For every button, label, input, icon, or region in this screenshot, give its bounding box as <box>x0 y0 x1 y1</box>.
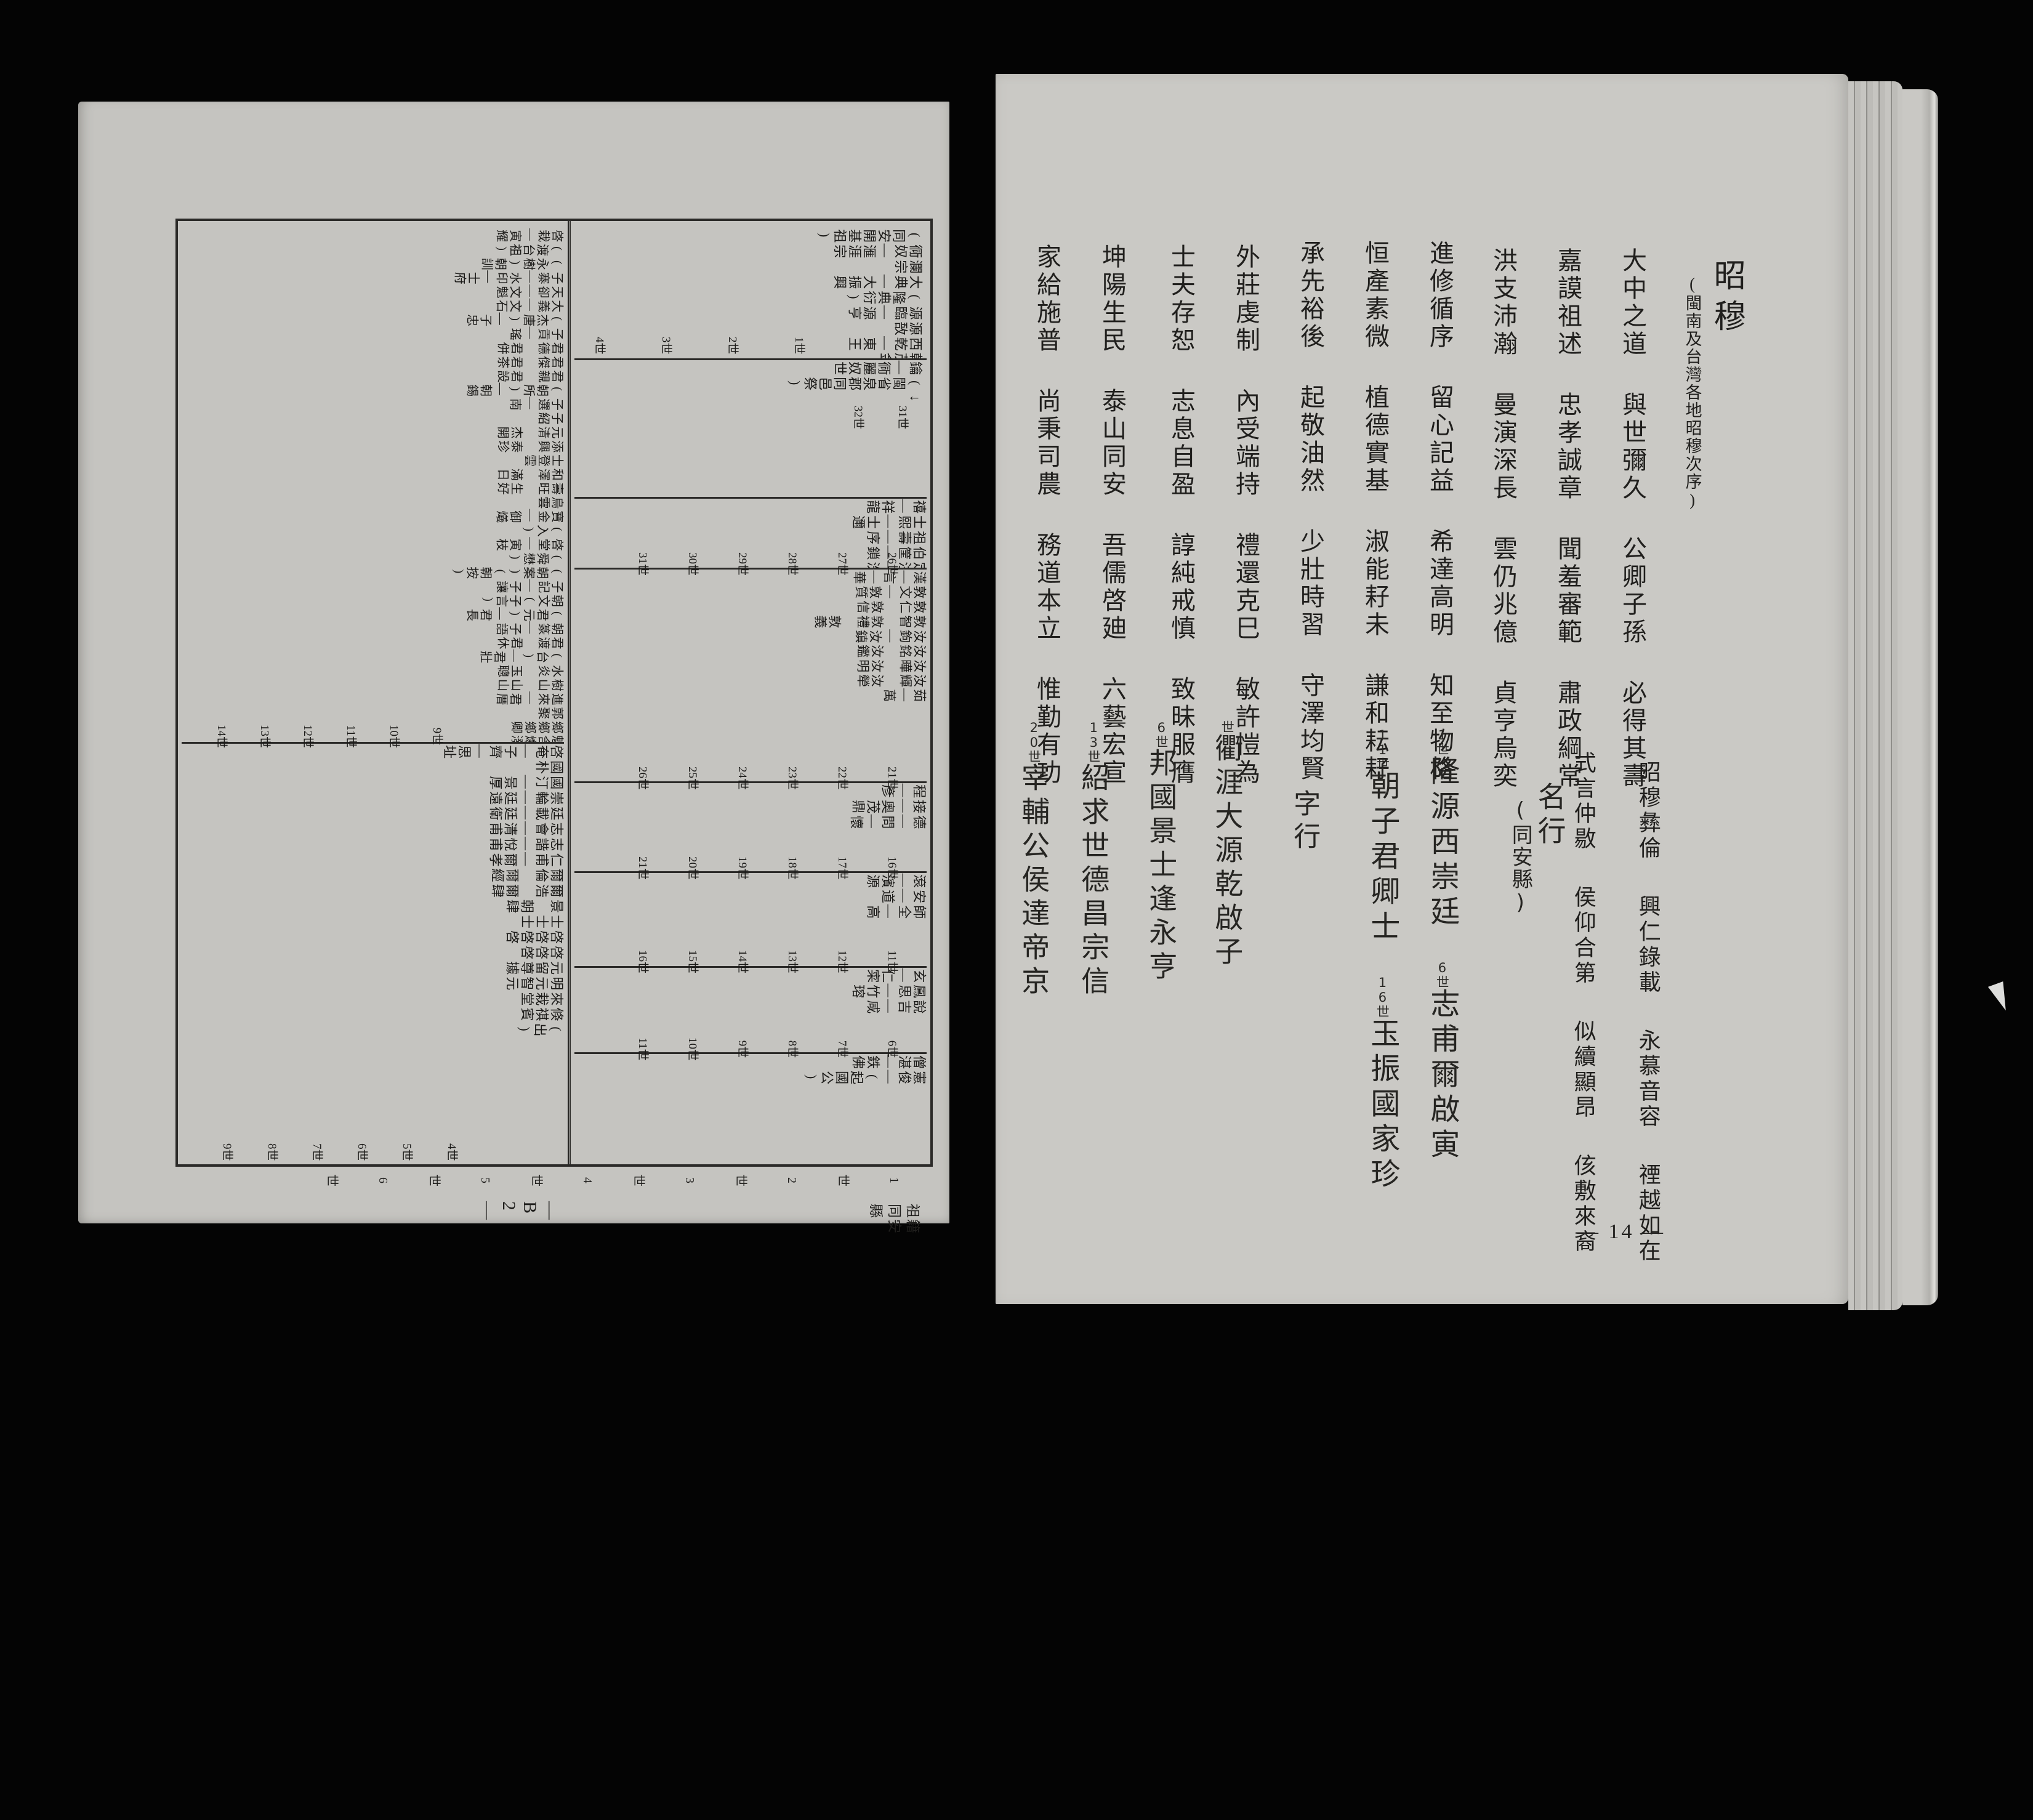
genealogy-chart-frame: (同安開基祖) 衕奴—滙涯宗 瀾宗 大典—大振興 (隆典衍) 源臨—源亨 源敔 … <box>175 219 933 1167</box>
lower-printed-column-1: 昭穆彝倫興仁錄載永慕音容禋越如在 <box>1636 760 1683 1264</box>
origin-caption: 祖籍同安縣 <box>866 1204 922 1248</box>
chart-panel-gen4-9: 啓奄—子齊—思址 國朴 國汀—景厚 崇輪—廷遠 廷載—廷衛 志會—清甫 志諧—悅… <box>182 743 564 1163</box>
title-note: (閩南及台灣各地昭穆次序) <box>1683 275 1702 510</box>
zi-hang-column-1: 世衢涯大源乾啟子 <box>1212 720 1272 970</box>
ming-hang-column-2: 11世朝子君卿士16世玉振國家珍 <box>1367 728 1429 1193</box>
gen-labels-4-9: 4世 5世 6世 7世 8世 9世 <box>203 1143 474 1161</box>
chart-panel-gen9-14: 啓栽—寅耀 (渡台祖) (永樹)朝訓 子寨—水印—士府 天卻—文魁 大義—文石 … <box>182 227 564 744</box>
verse-column-1: 大中之道與世彌久公卿子孫必得其壽 <box>1619 248 1671 791</box>
dust-fleck <box>1988 981 2013 1013</box>
chart-panel-gen1-6: 僧湛—鉄佛 憲俊—(起國公) <box>574 1053 927 1163</box>
zi-hang-column-2: 6世邦國景士逢永亨 <box>1146 720 1206 985</box>
ming-hang-heading: 名行 (同安縣) <box>1505 782 1595 916</box>
verse-column-2: 嘉謨祖述忠孝誠章聞羞審範肅政綱常 <box>1555 248 1606 791</box>
verse-column-8: 士夫存恕志息自盈諄純戒慎致昧服膺 <box>1168 244 1220 787</box>
zi-hang-column-3: 13世紹求世德昌宗信 <box>1079 720 1138 1000</box>
book-scan: (同安開基祖) 衕奴—滙涯宗 瀾宗 大典—大振興 (隆典衍) 源臨—源亨 源敔 … <box>0 0 2033 1820</box>
chart-row-lower: 啓栽—寅耀 (渡台祖) (永樹)朝訓 子寨—水印—士府 天卻—文魁 大義—文石 … <box>178 221 568 1164</box>
right-page: 昭穆 (閩南及台灣各地昭穆次序) 大中之道與世彌久公卿子孫必得其壽 嘉謨祖述忠孝… <box>996 74 1848 1304</box>
zi-hang-heading: 字行 <box>1290 789 1347 855</box>
chart-row-upper: (同安開基祖) 衕奴—滙涯宗 瀾宗 大典—大振興 (隆典衍) 源臨—源亨 源敔 … <box>568 221 930 1164</box>
gen-labels-1-4: 1世 2世 3世 4世 <box>616 337 832 355</box>
verse-column-4: 進修循序留心記益希達高明知至物格 <box>1427 240 1478 783</box>
left-page-number: — B 2 — <box>477 1201 561 1223</box>
verse-column-10: 家給施普尚秉司農務道本立惟勤有功 <box>1034 244 1085 787</box>
chart-panel-gen21-26: 漢—言—華 敦文—敦質 敦仁 敦信 敦智 敦禮 敦義 汝鉤—汝鎮 汝銘 汝鑑 汝… <box>574 569 927 783</box>
verse-column-3: 洪支沛瀚曼演深長雲仍兆億貞亨烏奕 <box>1490 248 1542 791</box>
section-title: 昭穆 (閩南及台灣各地昭穆次序) <box>1675 259 1776 510</box>
gen-labels-outside-1-6: 1世 2世 3世 4世 5世 6世 <box>611 1174 919 1186</box>
page-stack-edges <box>1848 81 1902 1310</box>
title-text: 昭穆 <box>1709 259 1744 340</box>
genealogy-chart: (同安開基祖) 衕奴—滙涯宗 瀾宗 大典—大振興 (隆典衍) 源臨—源亨 源敔 … <box>175 219 933 1167</box>
verse-column-7: 外莊虔制內受端持禮還克巳敏許愷為 <box>1233 244 1284 787</box>
page-stack-outer-edge <box>1902 89 1938 1305</box>
right-page-number: — 14 — <box>1577 1220 1665 1244</box>
verse-column-9: 坤陽生民泰山同安吾儒啓廸六藝宏宣 <box>1099 244 1151 787</box>
left-page: (同安開基祖) 衕奴—滙涯宗 瀾宗 大典—大振興 (隆典衍) 源臨—源亨 源敔 … <box>78 102 949 1223</box>
verse-column-6: 承先裕後起敬油然少壯時習守澤均賢 <box>1297 240 1349 783</box>
verse-column-5: 恒產素微植德實基淑能耔未謙和耘耔 <box>1362 240 1414 783</box>
zi-hang-column-4: 20世宰輔公侯達帝京 <box>1019 720 1079 1000</box>
gen-labels-31-32: 31世 32世 <box>844 406 924 429</box>
ming-hang-column-1: 1世隆源西崇廷6世志甫爾啟寅 <box>1427 728 1489 1164</box>
